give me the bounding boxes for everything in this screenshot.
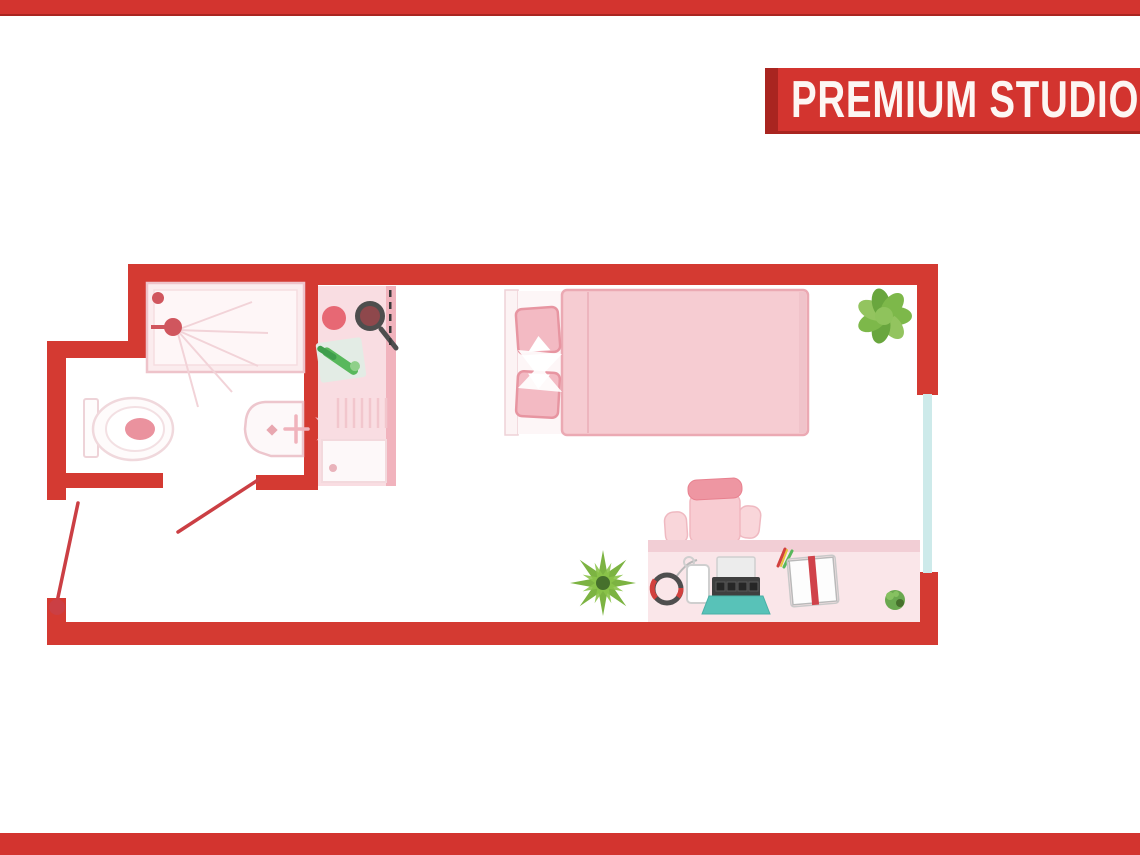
toilet [84, 398, 173, 460]
kitchen-counter [315, 286, 396, 486]
wall-bathroom-left [128, 264, 147, 358]
wall-right-upper [917, 264, 938, 395]
toilet-seat-mark [125, 418, 155, 440]
chair-headrest [688, 478, 743, 501]
bathroom-door-leaf [178, 480, 258, 532]
entrance-door-stop [49, 599, 65, 615]
office-chair [664, 478, 762, 545]
wall-bathroom-bottom-right [256, 475, 318, 490]
drying-rack [338, 398, 386, 428]
pan-inside [360, 306, 380, 326]
entrance-door-leaf [57, 503, 78, 602]
lamp-body [687, 565, 709, 603]
wall-bottom [47, 622, 938, 645]
potted-plant-large [855, 287, 912, 346]
desk-plant [885, 590, 905, 610]
window [923, 394, 932, 573]
kitchen-sink [322, 440, 386, 482]
shower [147, 283, 304, 407]
floorplan [0, 0, 1140, 855]
cutting-board [315, 337, 366, 383]
laptop-base [702, 596, 770, 614]
bed [505, 290, 808, 435]
floor-plant [570, 550, 636, 616]
plant-center [875, 307, 893, 325]
chair-seat [690, 494, 740, 543]
open-book [787, 554, 839, 607]
shower-head [164, 318, 182, 336]
hob-burner [322, 306, 346, 330]
wall-bathroom-kitchen-divider [304, 264, 318, 490]
wall-left [47, 341, 66, 500]
floor-plant-center [596, 576, 610, 590]
kitchen-sink-drain [329, 464, 337, 472]
duvet [562, 290, 808, 435]
page: PREMIUM STUDIO [0, 0, 1140, 855]
bottom-border-strip [0, 833, 1140, 855]
armrest-left [664, 511, 688, 544]
shower-head-small [152, 292, 164, 304]
pillow-top [516, 307, 561, 355]
desk [648, 540, 920, 622]
wall-bathroom-bottom-left [66, 473, 163, 488]
laptop-lid [717, 557, 755, 579]
bed-foot-edge [799, 292, 806, 433]
